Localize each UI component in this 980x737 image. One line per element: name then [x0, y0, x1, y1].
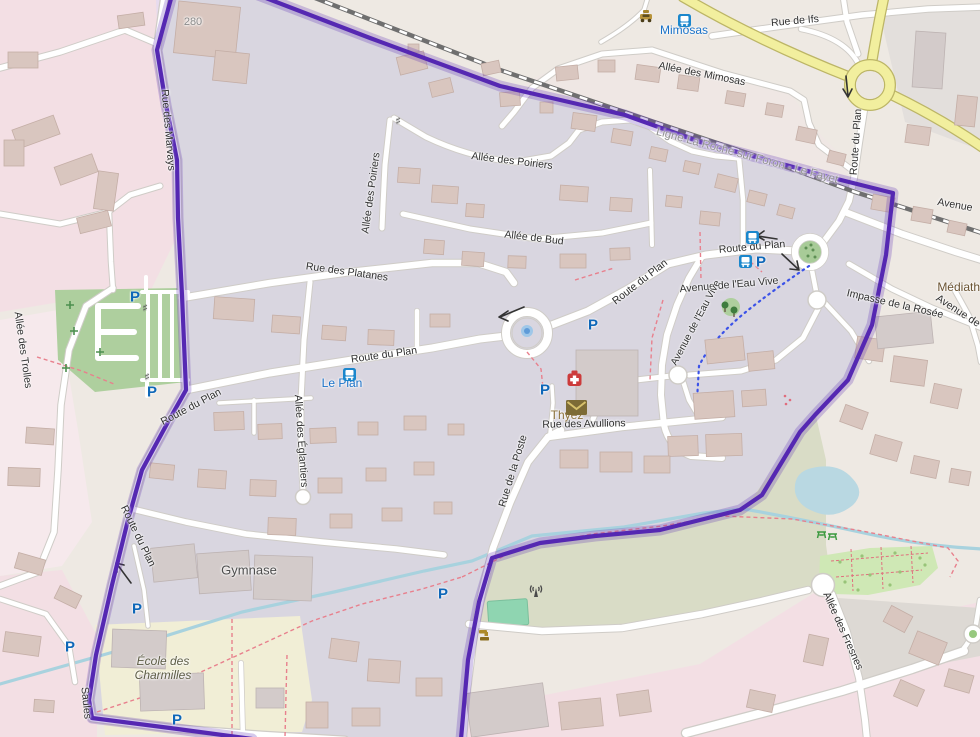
map-graphics: [0, 0, 980, 737]
parking-icon[interactable]: P: [130, 290, 140, 305]
parking-icon[interactable]: P: [132, 602, 142, 617]
map-canvas[interactable]: Rue de Ifs Allée des Mimosas Rue des Mar…: [0, 0, 980, 737]
gate-icon: ♯: [143, 304, 148, 313]
gate-icon: ♯: [145, 373, 150, 382]
parking-icon[interactable]: P: [438, 587, 448, 602]
parking-icon[interactable]: P: [65, 640, 75, 655]
parking-icon[interactable]: P: [588, 318, 598, 333]
parking-icon[interactable]: P: [172, 713, 182, 728]
parking-icon[interactable]: P: [756, 255, 766, 270]
parking-icon[interactable]: P: [540, 383, 550, 398]
parking-icon[interactable]: P: [147, 385, 157, 400]
gate-icon: ♯: [396, 117, 401, 126]
